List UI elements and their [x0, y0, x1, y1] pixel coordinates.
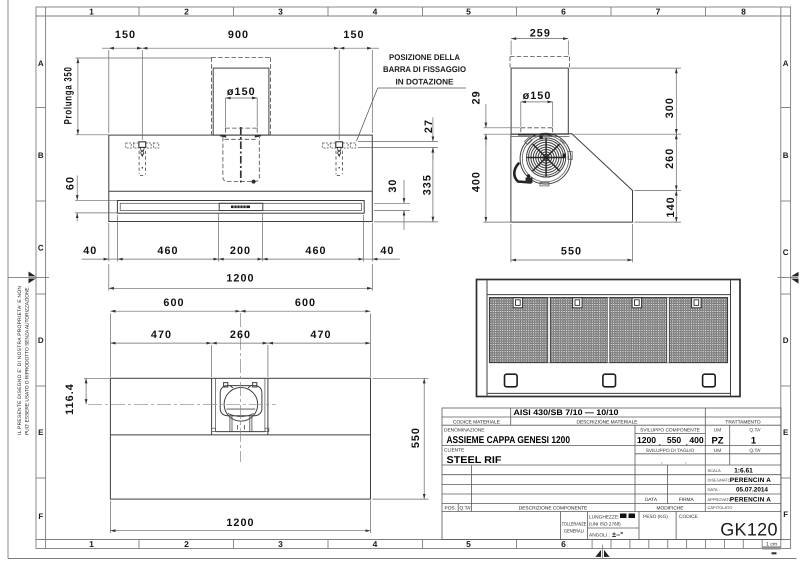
svg-text:600: 600 — [163, 297, 184, 309]
svg-text:DESCRIZIONE MATERIALE: DESCRIZIONE MATERIALE — [577, 419, 638, 425]
svg-text:E: E — [38, 428, 44, 437]
svg-text:8: 8 — [741, 7, 746, 17]
svg-text:29: 29 — [470, 90, 482, 104]
svg-text:DISEGNATO: DISEGNATO — [708, 478, 731, 483]
svg-text:Q.TA': Q.TA' — [749, 428, 761, 434]
svg-text:±–°: ±–° — [612, 530, 623, 539]
svg-text:TRATTAMENTO: TRATTAMENTO — [725, 419, 760, 425]
svg-text:D: D — [38, 336, 44, 345]
svg-text:3: 3 — [278, 7, 283, 17]
svg-text:LUNGHEZZE:: LUNGHEZZE: — [589, 515, 619, 521]
svg-text:1200: 1200 — [226, 273, 254, 285]
svg-text:UM: UM — [714, 428, 721, 434]
svg-text:460: 460 — [157, 245, 178, 257]
svg-text:550: 550 — [667, 435, 682, 445]
svg-text:116.4: 116.4 — [64, 383, 76, 415]
svg-text:05.07.2014: 05.07.2014 — [736, 487, 768, 494]
svg-text:260: 260 — [230, 329, 251, 341]
svg-text:ASSIEME CAPPA GENESI 1200: ASSIEME CAPPA GENESI 1200 — [447, 435, 571, 446]
svg-text:GK120: GK120 — [720, 520, 778, 540]
svg-text:200: 200 — [230, 245, 251, 257]
svg-text:1200: 1200 — [226, 517, 254, 529]
svg-text:40: 40 — [83, 245, 97, 257]
svg-text:400: 400 — [471, 171, 483, 192]
svg-text:DATA :: DATA : — [708, 487, 720, 492]
svg-text:APPROVATO: APPROVATO — [708, 497, 732, 502]
svg-text:1:6.61: 1:6.61 — [734, 467, 753, 474]
svg-text:UM: UM — [714, 448, 721, 454]
svg-text:,: , — [661, 459, 663, 465]
svg-text:460: 460 — [305, 245, 326, 257]
svg-text:470: 470 — [310, 329, 331, 341]
svg-text:GENERALI: GENERALI — [564, 529, 584, 535]
svg-text:C: C — [38, 244, 44, 253]
svg-text:F: F — [783, 510, 788, 519]
svg-text:C: C — [783, 248, 789, 257]
svg-text:STEEL RIF: STEEL RIF — [447, 455, 502, 466]
svg-text:335: 335 — [421, 174, 433, 195]
svg-text:1200: 1200 — [637, 435, 656, 445]
svg-text:DENOMINAZIONE: DENOMINAZIONE — [444, 428, 485, 434]
svg-text:CAPITOLATO: CAPITOLATO — [708, 505, 733, 510]
svg-text:TOLLERANZE: TOLLERANZE — [562, 522, 587, 528]
svg-text:DESCRIZIONE COMPONENTE: DESCRIZIONE COMPONENTE — [519, 505, 588, 511]
svg-text:60: 60 — [65, 176, 77, 190]
svg-text:(UNI ISO 2768): (UNI ISO 2768) — [589, 522, 621, 527]
svg-text:ø150: ø150 — [523, 90, 552, 102]
svg-text:IN DOTAZIONE: IN DOTAZIONE — [396, 77, 455, 86]
svg-text:PERENCIN A: PERENCIN A — [730, 496, 771, 503]
svg-text:Prolunga 350: Prolunga 350 — [62, 66, 74, 124]
svg-text:3: 3 — [278, 539, 283, 549]
svg-text:AISI 430/SB 7/10 — 10/10: AISI 430/SB 7/10 — 10/10 — [514, 408, 620, 417]
svg-text:D: D — [783, 336, 789, 345]
svg-text:PESO (KG): PESO (KG) — [643, 514, 668, 520]
svg-text:4: 4 — [373, 539, 378, 549]
svg-text:260: 260 — [664, 148, 676, 169]
svg-text:Q.TA': Q.TA' — [460, 505, 472, 511]
svg-text:PUO' ESSERE USATO O RIPRODOTTO: PUO' ESSERE USATO O RIPRODOTTO SENZA AUT… — [25, 286, 31, 435]
svg-text:1: 1 — [751, 434, 756, 445]
svg-text:300: 300 — [664, 97, 676, 118]
svg-text:POSIZIONE DELLA: POSIZIONE DELLA — [389, 53, 460, 62]
svg-text:BARRA DI FISSAGGIO: BARRA DI FISSAGGIO — [383, 65, 467, 74]
svg-text:POS.: POS. — [445, 505, 456, 511]
svg-text:CLIENTE: CLIENTE — [444, 448, 464, 454]
svg-text:5: 5 — [466, 539, 471, 549]
svg-text:150: 150 — [343, 29, 364, 41]
svg-text:Q.TA': Q.TA' — [749, 448, 761, 454]
svg-text:E: E — [783, 428, 789, 437]
svg-text:B: B — [38, 151, 44, 160]
svg-text:550: 550 — [410, 427, 422, 448]
svg-text:,: , — [685, 459, 687, 465]
svg-text:SVILUPPO DI TAGLIO: SVILUPPO DI TAGLIO — [646, 448, 695, 454]
svg-text:2: 2 — [184, 539, 189, 549]
svg-text:550: 550 — [561, 246, 582, 258]
svg-text:150: 150 — [115, 29, 136, 41]
svg-text:MODIFICHE: MODIFICHE — [657, 505, 684, 511]
svg-text:IL PRESENTE DISEGNO E' DI NOST: IL PRESENTE DISEGNO E' DI NOSTRA PROPRIE… — [17, 286, 23, 435]
svg-text:FIRMA: FIRMA — [679, 497, 695, 503]
svg-text:ø150: ø150 — [227, 86, 256, 98]
svg-text:SCALA: SCALA — [708, 468, 721, 473]
svg-text:2: 2 — [184, 7, 189, 17]
svg-text:27: 27 — [423, 119, 435, 133]
svg-text:900: 900 — [228, 29, 249, 41]
svg-text:140: 140 — [665, 196, 677, 217]
svg-text:,: , — [659, 441, 661, 447]
svg-text:1: 1 — [89, 7, 94, 17]
svg-text:7: 7 — [656, 7, 661, 17]
svg-text:259: 259 — [530, 27, 551, 39]
svg-text:A: A — [783, 59, 789, 68]
svg-text:6: 6 — [561, 7, 566, 17]
svg-text:5: 5 — [466, 7, 471, 17]
svg-text:DATA: DATA — [645, 497, 658, 503]
svg-text:B: B — [783, 151, 789, 160]
svg-text:4: 4 — [373, 7, 378, 17]
svg-text:SVILUPPO COMPONENTE: SVILUPPO COMPONENTE — [640, 428, 700, 434]
svg-text:,: , — [686, 441, 688, 447]
svg-text:ANGOLI :: ANGOLI : — [589, 532, 610, 538]
svg-text:1: 1 — [89, 539, 94, 549]
svg-text:CODICE: CODICE — [679, 514, 698, 520]
svg-text:30: 30 — [387, 179, 399, 193]
svg-text:400: 400 — [689, 435, 704, 445]
svg-text:6: 6 — [561, 539, 566, 549]
svg-text:PERENCIN A: PERENCIN A — [730, 477, 771, 484]
svg-text:PZ: PZ — [712, 434, 724, 445]
svg-text:F: F — [38, 512, 43, 521]
svg-text:A: A — [38, 59, 44, 68]
svg-text:470: 470 — [151, 329, 172, 341]
svg-text:CODICE MATERIALE: CODICE MATERIALE — [453, 419, 500, 425]
svg-text:600: 600 — [295, 297, 316, 309]
svg-text:40: 40 — [380, 245, 394, 257]
